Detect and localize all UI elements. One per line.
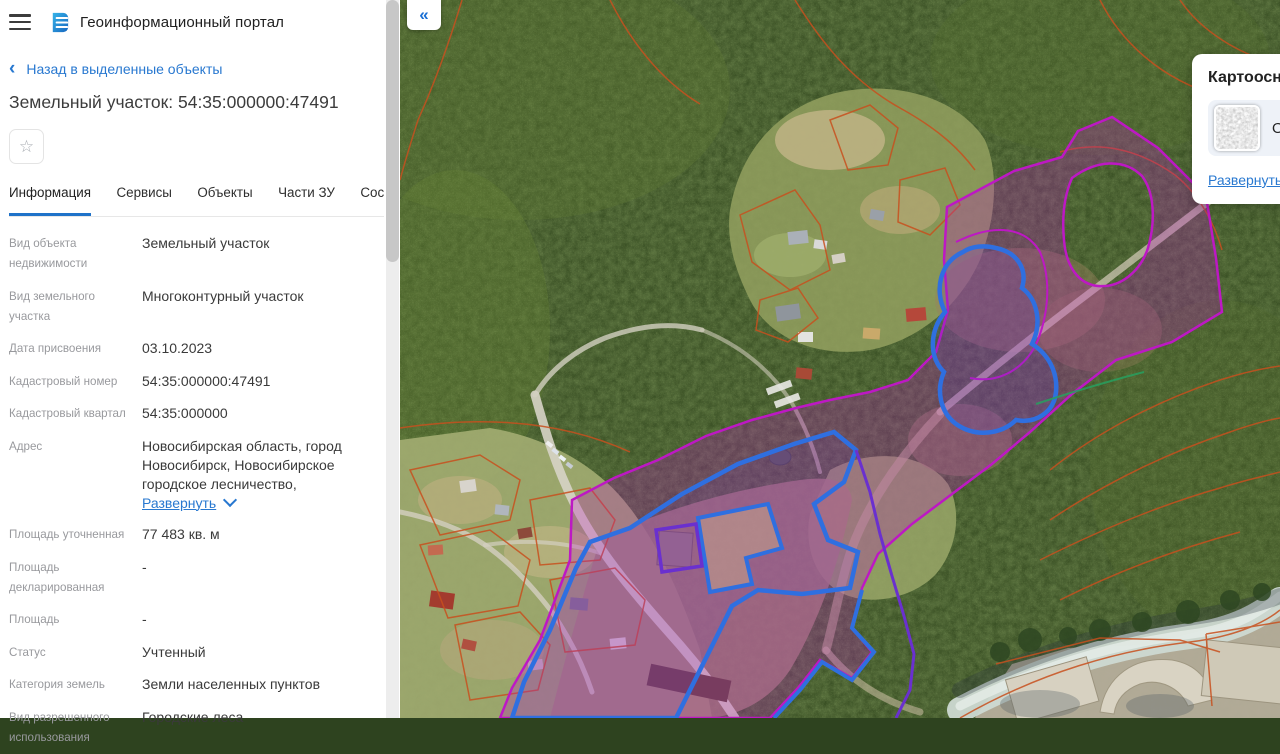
favorite-button[interactable]: ☆ [9,129,44,164]
chevron-left-icon: ‹ [9,62,15,76]
field-assignment-date: Дата присвоения 03.10.2023 [9,333,384,366]
portal-logo-icon [48,11,71,34]
field-area-declared: Площадь декларированная - [9,552,384,605]
field-area-refined: Площадь уточненная 77 483 кв. м [9,519,384,552]
basemap-card-title: Картооснова [1208,69,1280,87]
attributes-list: Вид объекта недвижимости Земельный участ… [9,228,384,754]
double-chevron-left-icon: « [419,5,428,25]
basemap-option-label: Ортофотоплан [1272,120,1280,137]
basemap-thumbnail[interactable] [1214,105,1260,151]
basemap-option-orthophoto[interactable]: Ортофотоплан [1208,100,1280,156]
collapse-panel-button[interactable]: « [407,0,441,30]
tab-services[interactable]: Сервисы [116,185,171,213]
basemap-card: Картооснова Ортофотоплан Развернуть [1192,54,1280,204]
parcel-title: Земельный участок: 54:35:000000:47491 [9,92,384,113]
tab-bar: Информация Сервисы Объекты Части ЗУ Сост… [9,184,384,217]
app-title: Геоинформационный портал [80,14,284,31]
panel-scrollbar-thumb[interactable] [386,0,399,262]
star-icon: ☆ [19,137,34,157]
field-cadastral-number: Кадастровый номер 54:35:000000:47491 [9,366,384,399]
field-area: Площадь - [9,604,384,637]
field-permitted-use: Вид разрешенного использования Городские… [9,702,384,754]
field-land-category: Категория земель Земли населенных пункто… [9,669,384,702]
app-header: Геоинформационный портал [9,0,384,37]
basemap-expand-label[interactable]: Развернуть [1208,172,1280,188]
field-status: Статус Учтенный [9,637,384,670]
geoportal-app: { "app": { "title": "Геоинформационный п… [0,0,1280,718]
chevron-down-icon [223,492,237,506]
map-viewport[interactable] [400,0,1280,718]
field-parcel-kind: Вид земельного участка Многоконтурный уч… [9,281,384,334]
info-panel: Геоинформационный портал ‹ Назад в выдел… [0,0,400,718]
back-link[interactable]: ‹ Назад в выделенные объекты [9,61,384,77]
address-expand-link[interactable]: Развернуть [142,495,216,511]
back-link-label[interactable]: Назад в выделенные объекты [26,61,222,77]
tab-parcel-parts[interactable]: Части ЗУ [278,185,335,213]
field-address: Адрес Новосибирская область, город Новос… [9,431,384,520]
tab-information[interactable]: Информация [9,185,91,216]
field-cadastral-quarter: Кадастровый квартал 54:35:000000 [9,398,384,431]
map-canvas[interactable] [400,0,1280,718]
tab-objects[interactable]: Объекты [197,185,252,213]
menu-button[interactable] [9,14,31,30]
tab-composition[interactable]: Состав ЕЗ [360,185,384,213]
basemap-expand-link[interactable]: Развернуть [1208,172,1280,188]
field-object-kind: Вид объекта недвижимости Земельный участ… [9,228,384,281]
address-text: Новосибирская область, город Новосибирск… [142,438,342,492]
